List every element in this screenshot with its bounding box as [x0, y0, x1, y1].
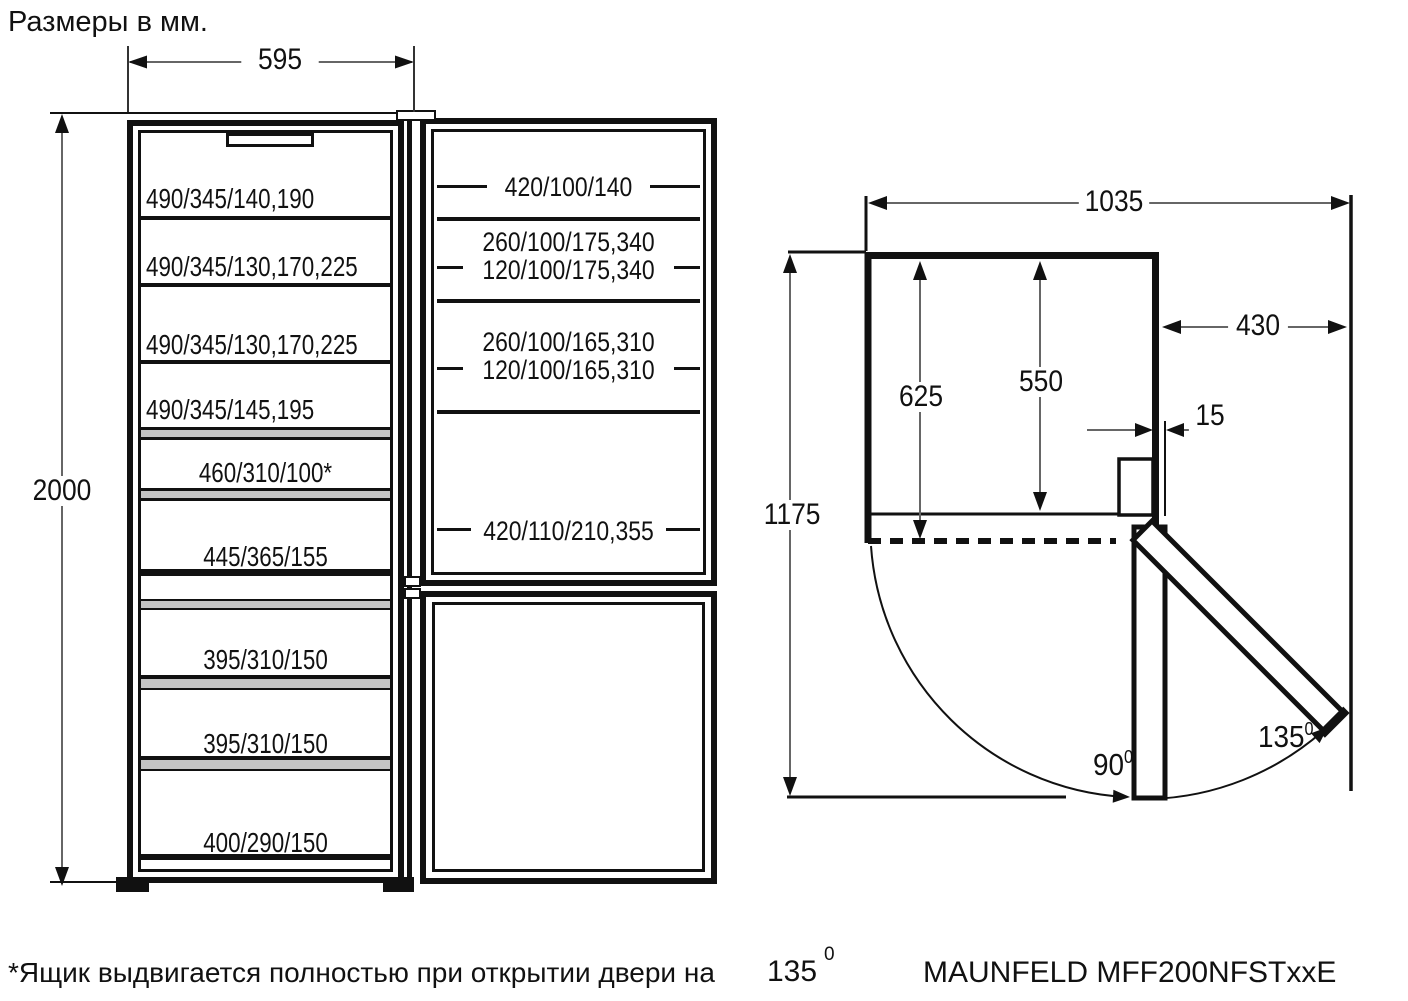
angle-90-value: 90: [1093, 747, 1124, 782]
angle-135-value: 135: [1258, 719, 1305, 754]
hinge-bracket: [1119, 459, 1153, 515]
dimension-diagram: Размеры в мм. 490/345/140,190 490/345/13: [0, 0, 1408, 1001]
dim-label-1175: 1175: [762, 500, 820, 530]
dim-label-550: 550: [1014, 367, 1069, 397]
dim-label-625: 625: [894, 382, 949, 412]
angle-135-degree: 0: [1305, 719, 1314, 739]
dim-1035: [866, 195, 1351, 791]
dim-label-595: 595: [241, 45, 318, 75]
dim-label-430: 430: [1228, 311, 1288, 341]
drawing-overlay: [0, 0, 1408, 1001]
dim-label-2000: 2000: [30, 476, 93, 506]
angle-label-135: 1350: [1258, 721, 1314, 757]
top-view-body: [787, 256, 1165, 798]
angle-90-degree: 0: [1124, 747, 1133, 767]
dim-label-1035: 1035: [1079, 187, 1149, 217]
door-swing-arc-90: [871, 546, 1130, 803]
angle-label-90: 900: [1093, 749, 1133, 785]
dim-label-15: 15: [1189, 401, 1231, 431]
